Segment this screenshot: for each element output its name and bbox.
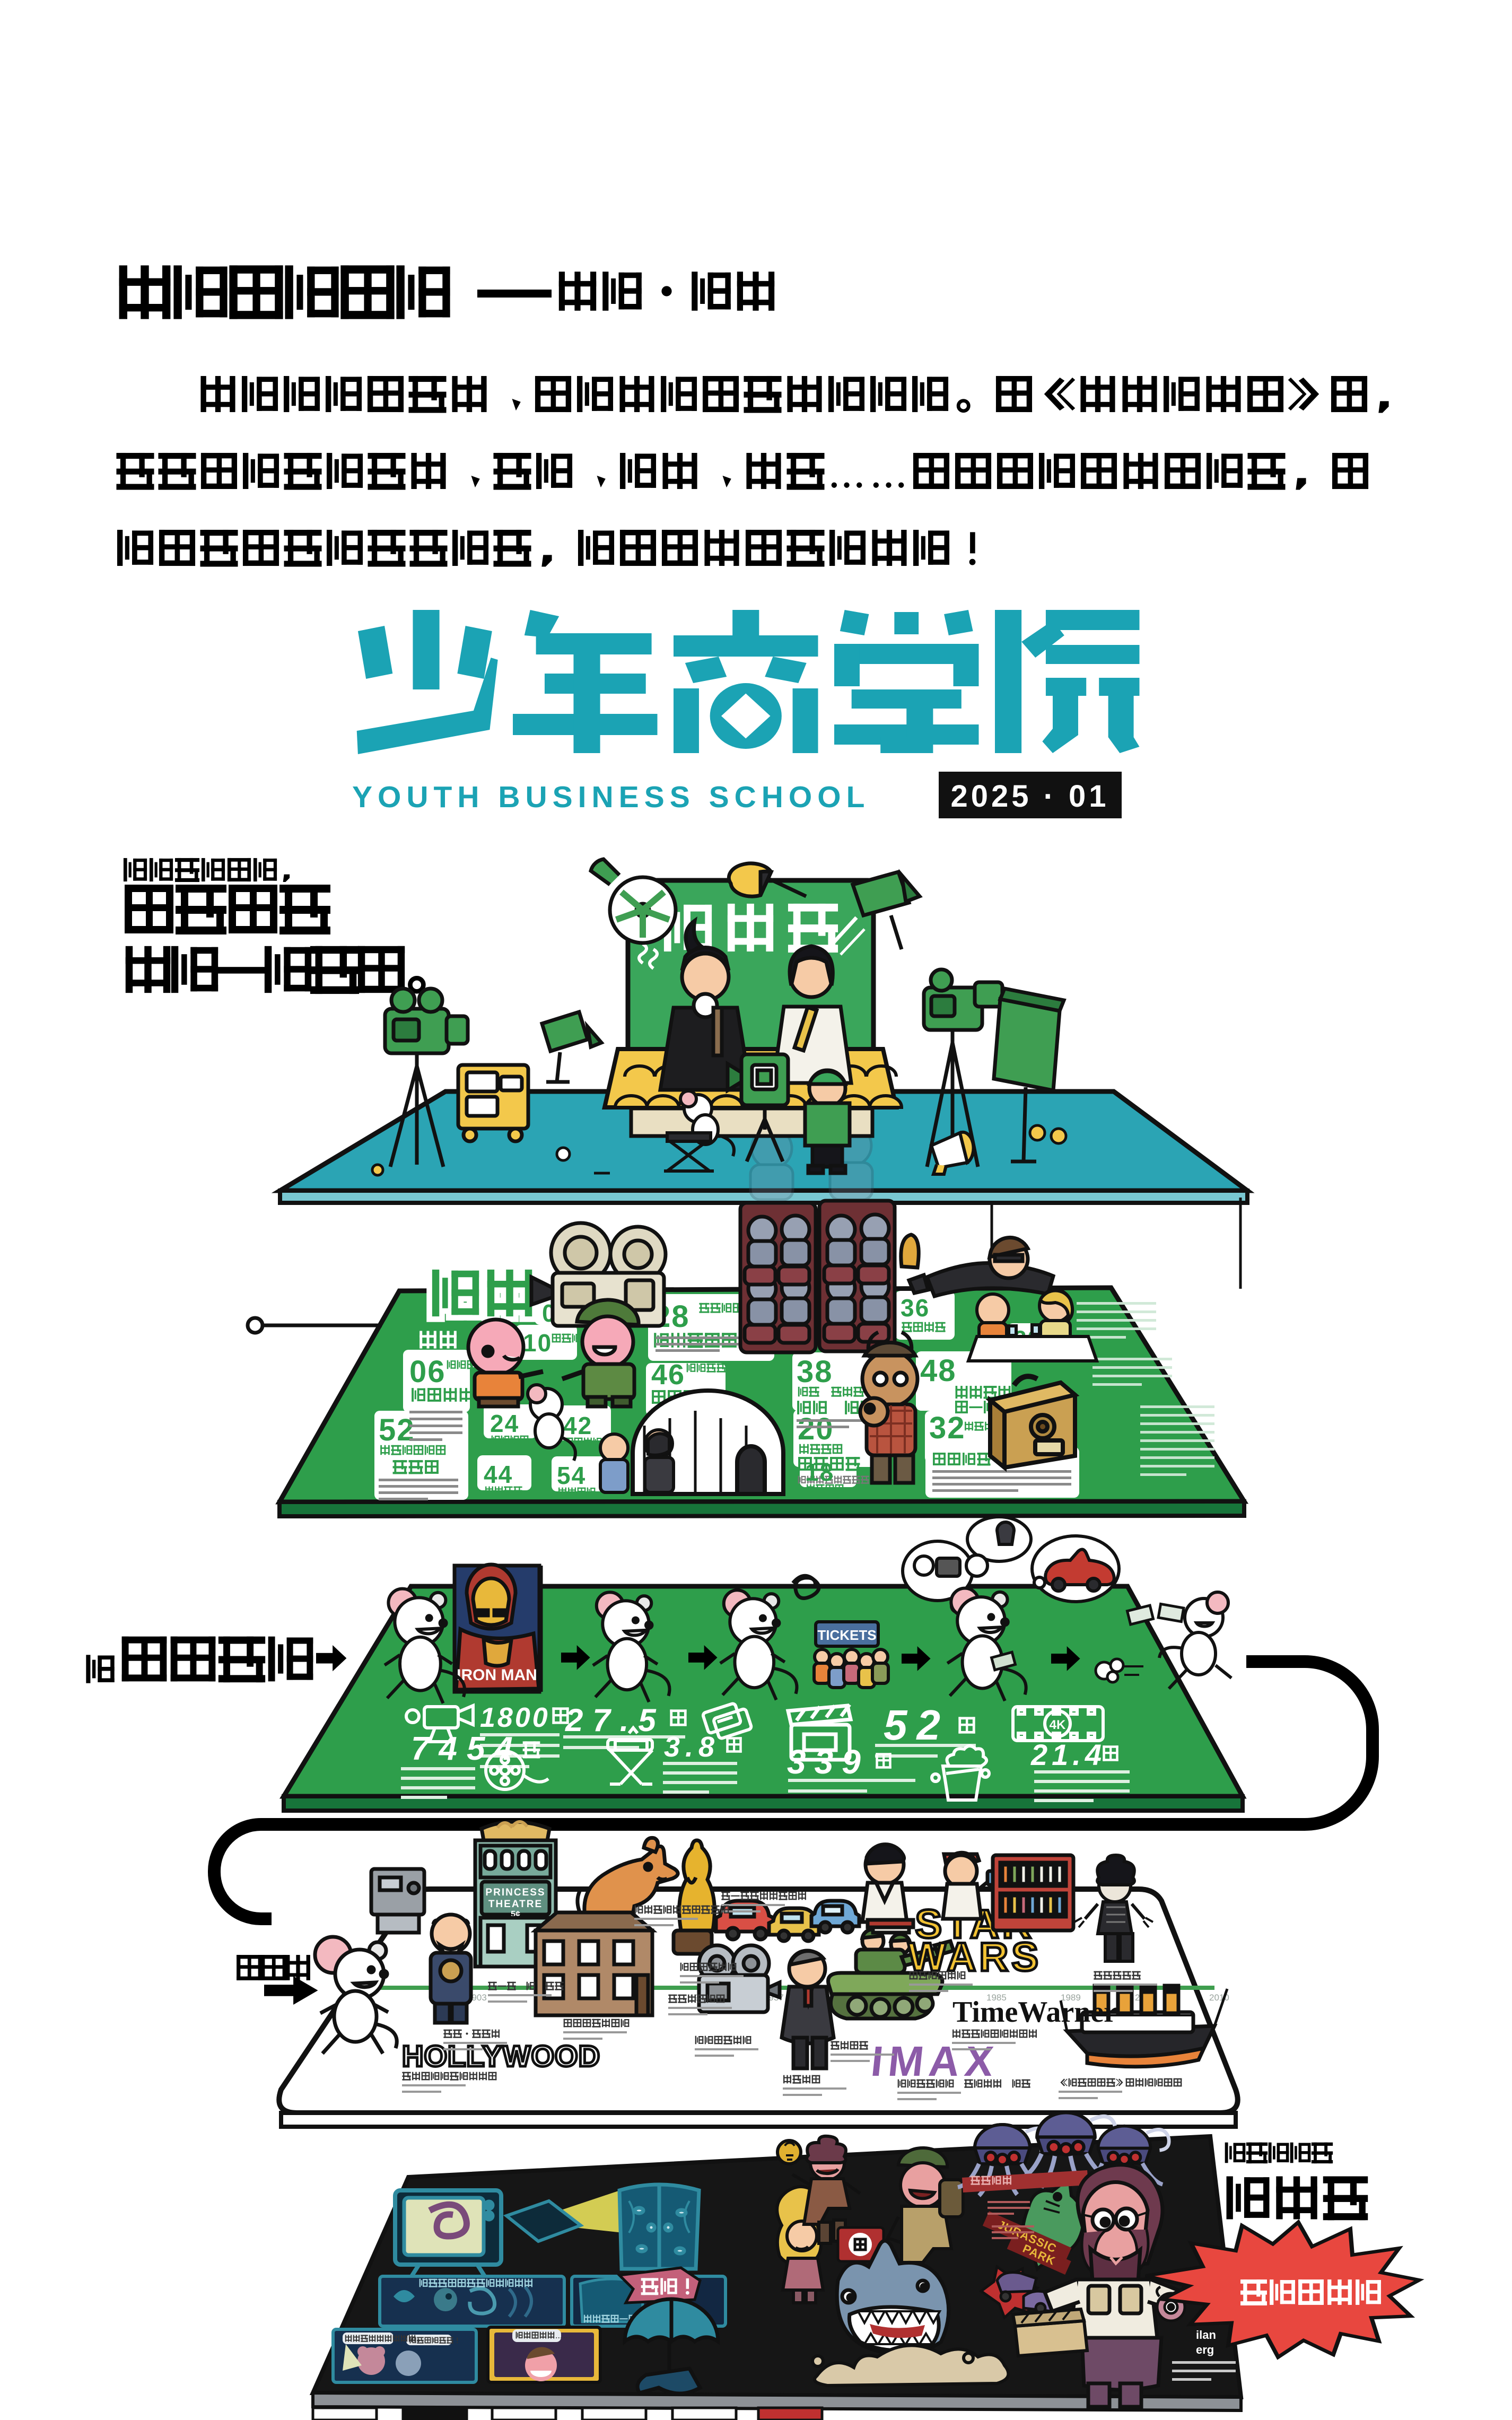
svg-text:42: 42	[563, 1412, 592, 1439]
svg-text:ilan: ilan	[1196, 2328, 1216, 2342]
svg-text:4K: 4K	[1050, 1718, 1066, 1732]
svg-text:1800: 1800	[480, 1702, 550, 1733]
svg-text:10: 10	[523, 1329, 552, 1357]
svg-text:21.4: 21.4	[1030, 1738, 1106, 1771]
svg-text:7454: 7454	[411, 1731, 522, 1767]
svg-text:erg: erg	[1196, 2343, 1214, 2356]
svg-text:48: 48	[920, 1353, 957, 1388]
svg-text:54: 54	[557, 1462, 586, 1489]
svg-text:3.8: 3.8	[664, 1731, 720, 1763]
svg-text:TimeWarner: TimeWarner	[952, 1996, 1117, 2029]
svg-text:06: 06	[409, 1355, 446, 1389]
svg-text:24: 24	[490, 1410, 519, 1437]
svg-text:PRINCESS: PRINCESS	[485, 1887, 545, 1898]
svg-text:32: 32	[929, 1411, 966, 1445]
svg-text:27.5: 27.5	[565, 1702, 666, 1738]
svg-text:52: 52	[884, 1701, 950, 1749]
svg-text:44: 44	[484, 1461, 513, 1488]
svg-text:36: 36	[901, 1294, 930, 1322]
svg-text:46: 46	[651, 1359, 685, 1391]
svg-text:THEATRE: THEATRE	[488, 1899, 543, 1910]
svg-text:HOLLYWOOD: HOLLYWOOD	[402, 2039, 600, 2073]
svg-text:38: 38	[797, 1355, 833, 1389]
svg-text:339: 339	[787, 1743, 869, 1781]
svg-text:18: 18	[805, 1458, 834, 1486]
svg-text:IMAX: IMAX	[869, 2037, 1001, 2085]
svg-text:WARS: WARS	[908, 1935, 1042, 1980]
svg-text:2025 · 01: 2025 · 01	[950, 779, 1109, 814]
svg-text:IRON MAN: IRON MAN	[457, 1666, 537, 1684]
svg-text:YOUTH BUSINESS SCHOOL: YOUTH BUSINESS SCHOOL	[352, 780, 870, 814]
svg-text:20: 20	[798, 1412, 834, 1446]
svg-text:TICKETS: TICKETS	[817, 1627, 876, 1643]
